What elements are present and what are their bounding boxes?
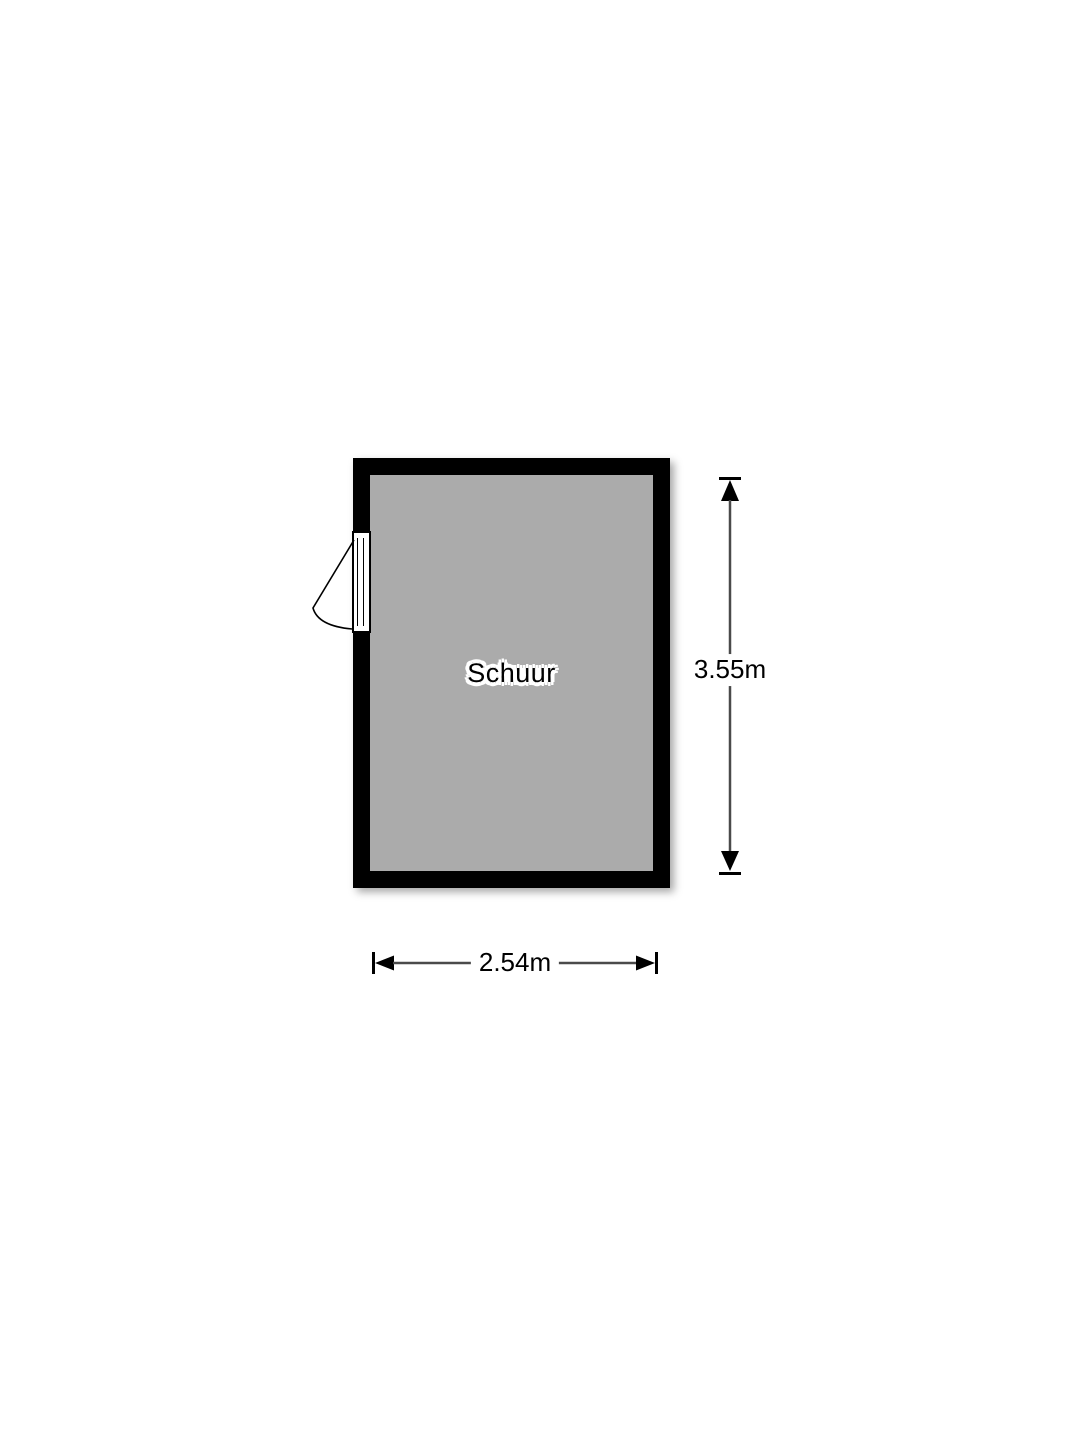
door-swing-icon bbox=[313, 540, 354, 629]
arrow-right-icon bbox=[636, 956, 655, 971]
room-schuur: Schuur bbox=[353, 458, 670, 888]
height-dimension-label: 3.55m bbox=[686, 654, 774, 686]
floorplan-canvas: Schuur 3.55m 2.54m bbox=[0, 0, 1080, 1440]
door-opening bbox=[352, 531, 371, 633]
width-dimension-label: 2.54m bbox=[471, 947, 559, 979]
room-label: Schuur bbox=[467, 660, 556, 687]
door-leaf bbox=[357, 538, 364, 626]
arrow-down-icon bbox=[721, 851, 739, 871]
arrow-up-icon bbox=[721, 480, 739, 501]
arrow-left-icon bbox=[375, 956, 394, 971]
